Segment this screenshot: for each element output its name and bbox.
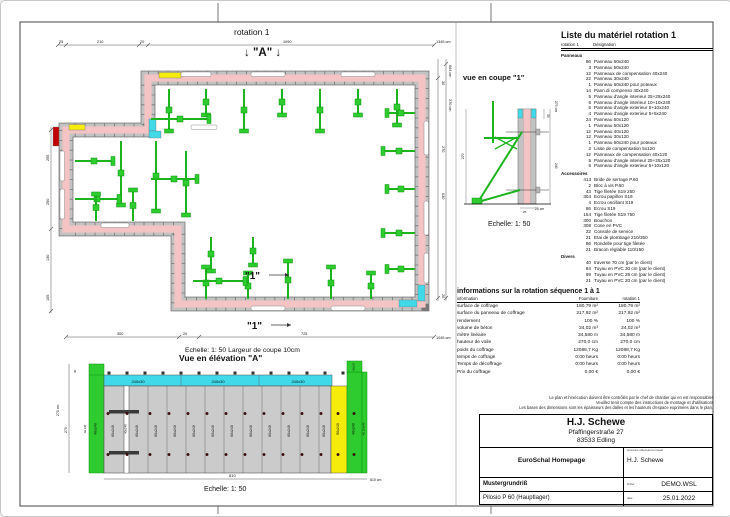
file-value: DEMO.WSL (649, 481, 709, 489)
green-prop-plate (316, 129, 325, 133)
green-prop-plate (367, 271, 376, 275)
svg-text:30: 30 (73, 369, 77, 373)
info-label: temps de coffrage (457, 354, 556, 361)
elevation-scale: Echelle: 1: 50 (204, 486, 247, 493)
section-wall (506, 109, 549, 204)
info-fourniture: 12088,7 Kg (556, 347, 598, 354)
green-prop-plate (202, 265, 211, 269)
info-table-header: information Fourniture rotation 1 (457, 296, 640, 303)
green-prop-coupler (328, 280, 334, 286)
section-title: vue en coupe "1" (463, 73, 525, 82)
panel-label: 60x240 (322, 425, 326, 437)
green-prop-plate (240, 129, 249, 133)
lisse-clamp (198, 372, 201, 375)
lisse-clamp (162, 372, 165, 375)
tie-dot (263, 412, 266, 415)
material-list-header: rotation 1 Désignation (561, 42, 713, 49)
lisse-clamp (288, 372, 291, 375)
lisse-clamp (252, 372, 255, 375)
panel-label: 60x240 (192, 425, 196, 437)
tie-dot (149, 453, 152, 456)
col-fourniture: Fourniture (556, 296, 598, 302)
info-table-title: informations sur la rotation séquence 1 … (457, 287, 640, 296)
material-name: Tuyau en PVC 20 cm (par le client) (594, 278, 713, 284)
green-prop-coupler (203, 99, 209, 105)
info-row: hauteur de voile270,0 cm270,0 cm (457, 339, 640, 346)
material-count: 21 (561, 278, 594, 284)
tie-dot (187, 453, 190, 456)
info-fourniture: 0:00 heurs (556, 354, 598, 361)
info-fourniture: 0,00 € (556, 369, 598, 376)
tie-dot (337, 412, 340, 415)
green-prop-coupler (93, 205, 99, 211)
svg-text:270 cm: 270 cm (554, 101, 558, 112)
elevation-title: Vue en élévation "A" (179, 353, 262, 363)
panel-label: 60x240 (211, 425, 215, 437)
green-prop-plate (381, 147, 385, 156)
material-list-col2: Désignation (593, 42, 616, 48)
waler-plate (60, 189, 65, 219)
green-prop-coupler (183, 180, 189, 186)
panel-label: 50x240 (336, 423, 340, 435)
date-field: date 25.01.2022 (624, 492, 712, 506)
tie-dot (126, 453, 129, 456)
panel-label: 60x240 (249, 425, 253, 437)
svg-text:270: 270 (441, 146, 445, 152)
material-row: 5Panneau d'angle exterieur 5+10x120 (561, 163, 713, 169)
lisse-clamp (270, 372, 273, 375)
date-value: 25.01.2022 (649, 495, 709, 503)
info-fourniture: 270,0 cm (556, 339, 598, 346)
plan-title: rotation 1 (234, 27, 270, 37)
green-prop-coupler (396, 230, 402, 236)
material-row: 21Tuyau en PVC 20 cm (par le client) (561, 278, 713, 284)
svg-text:130: 130 (46, 255, 50, 261)
section-brace-foot (472, 198, 482, 204)
tie-dot (320, 453, 323, 456)
panel-label: 60x240 (154, 425, 158, 437)
green-prop-coupler (285, 277, 291, 283)
info-rotation1: 0,00 € (598, 369, 640, 376)
lisse-clamp (234, 372, 237, 375)
waler-plate (251, 306, 285, 311)
green-prop-coupler (216, 278, 222, 284)
green-prop-plate (207, 269, 216, 273)
svg-text:725: 725 (301, 332, 307, 336)
green-prop-plate (195, 175, 199, 184)
panel-label: 40x120 (353, 362, 356, 371)
info-label: surface de coffrage (457, 303, 556, 310)
tie-dot (187, 412, 190, 415)
panel-label: 40x240 (352, 423, 356, 435)
panel-label: 40x240 (94, 423, 98, 435)
svg-text:270 cm: 270 cm (56, 404, 60, 416)
info-row: volume de béton24,02 m³24,02 m³ (457, 325, 640, 332)
green-prop-plate (393, 123, 402, 127)
info-row: mètre linéaire34,580 m34,580 m (457, 332, 640, 339)
panel-label: 60x240 (135, 425, 139, 437)
green-prop-coupler (241, 107, 247, 113)
svg-text:25: 25 (59, 40, 63, 44)
svg-text:240: 240 (554, 163, 558, 169)
panel-label: 60x240 (268, 425, 272, 437)
tie-dot (107, 412, 110, 415)
svg-text:300: 300 (117, 332, 123, 336)
green-prop-coupler (171, 176, 177, 182)
tie-dot (244, 453, 247, 456)
safety-notes: Le plan et l'exécution doivent être cont… (431, 395, 713, 410)
green-prop-plate (117, 195, 121, 204)
elevation-view: Vue en élévation "A" 60x24060x24060x2406… (56, 353, 382, 493)
plan-name-field: Mustergrundriß (480, 478, 624, 492)
lisse-label: 240x30 (291, 379, 305, 384)
svg-text:810: 810 (229, 473, 236, 478)
green-prop-coupler (279, 99, 285, 105)
tie-dot (301, 412, 304, 415)
green-prop-coupler (398, 186, 404, 192)
panel-label: 60x240 (173, 425, 177, 437)
green-prop-plate (385, 109, 389, 118)
waler-plate (191, 125, 217, 130)
waler-plate (101, 223, 129, 228)
tie-dot (320, 412, 323, 415)
green-prop-coupler (398, 110, 404, 116)
green-prop-coupler (394, 104, 400, 110)
material-row: 21Bracon réglable 110/150 (561, 247, 713, 253)
rotation-info-table: informations sur la rotation séquence 1 … (457, 287, 640, 376)
tie-dot (149, 412, 152, 415)
green-prop-plate (129, 188, 138, 192)
green-prop-plate (249, 263, 258, 267)
svg-text:105: 105 (46, 295, 50, 301)
info-fourniture: 34,580 m (556, 332, 598, 339)
lisse-clamp (108, 372, 111, 375)
info-row: surface de coffrage180,79 m²180,79 m² (457, 303, 640, 310)
info-rotation1: 100 % (598, 318, 640, 325)
lisse-clamp (306, 372, 309, 375)
green-prop-coupler (166, 107, 172, 113)
green-prop-coupler (250, 248, 256, 254)
tie-dot (107, 453, 110, 456)
lisse-label: 240x30 (211, 379, 225, 384)
tie-dot (282, 412, 285, 415)
svg-text:20: 20 (183, 332, 187, 336)
tie-dot (206, 453, 209, 456)
lisse-clamp (180, 372, 183, 375)
material-list: Liste du matériel rotation 1 rotation 1 … (561, 30, 713, 283)
tie-dot (353, 412, 356, 415)
green-prop-coupler (317, 107, 323, 113)
panel-label: AE 10x240 (362, 422, 366, 435)
info-rotation1: 12088,7 Kg (598, 347, 640, 354)
panel-label: 60x240 (287, 425, 291, 437)
tie-dot (301, 453, 304, 456)
tie-dot (168, 453, 171, 456)
green-prop-plate (385, 265, 389, 274)
formwork-field: Pilosio P 60 (Hauptlager) (480, 492, 624, 506)
green-prop-plate (152, 209, 161, 213)
panel-label: 40x240 (124, 424, 128, 434)
waler-plate (251, 72, 285, 77)
tie-dot (225, 453, 228, 456)
info-rotation1: 270,0 cm (598, 339, 640, 346)
green-prop-plate (92, 192, 101, 196)
info-rotation1: 0:00 heurs (598, 361, 640, 368)
panel-label: 60x240 (111, 425, 115, 437)
info-row: surface du panneau de coffrage217,92 m²2… (457, 310, 640, 317)
info-label: rendement (457, 318, 556, 325)
svg-text:"1": "1" (247, 321, 262, 332)
green-prop-coupler (130, 203, 136, 209)
green-prop-plate (207, 115, 211, 124)
info-rotation1: 34,580 m (598, 332, 640, 339)
green-prop-coupler (398, 266, 404, 272)
file-label: fichier (627, 483, 649, 486)
waler-plate (181, 72, 211, 77)
svg-text:270: 270 (461, 153, 465, 159)
material-count: 21 (561, 247, 594, 253)
col-information: information (457, 296, 556, 302)
svg-text:25 cm: 25 cm (535, 207, 544, 211)
site-field: EuroSchal Homepage (480, 448, 624, 478)
material-name: Panneau d'angle exterieur 5+10x120 (594, 163, 713, 169)
material-list-title: Liste du matériel rotation 1 (561, 30, 713, 41)
green-prop-plate (111, 157, 115, 166)
waler-plate (331, 306, 365, 311)
green-prop-coupler (118, 170, 124, 176)
info-label: surface du panneau de coffrage (457, 310, 556, 317)
waler-plate (341, 72, 375, 77)
section-dim-labels: 270 30 270 cm 240 25 25 cm (461, 101, 558, 214)
lisse-clamp (216, 372, 219, 375)
svg-text:1345 cm: 1345 cm (436, 40, 451, 44)
file-field: fichier DEMO.WSL (624, 478, 712, 492)
green-prop-coupler (177, 116, 183, 122)
section-scale: Echelle: 1: 50 (488, 221, 531, 228)
green-prop-plate (278, 113, 287, 117)
elevation-marker-a: ↓ "A" ↓ (244, 47, 281, 59)
tie-dot (282, 453, 285, 456)
date-label: date (627, 497, 649, 500)
info-label: volume de béton (457, 325, 556, 332)
info-rotation1: 217,92 m² (598, 310, 640, 317)
info-label: Temps de décoffrage (457, 361, 556, 368)
green-prop-coupler (91, 158, 97, 164)
divider (561, 49, 713, 52)
waler-plate (424, 253, 429, 283)
info-row: rendement100 %100 % (457, 318, 640, 325)
lisse-clamp (126, 372, 129, 375)
tie-dot (244, 412, 247, 415)
material-count: 5 (561, 163, 594, 169)
lisse-clamp (144, 372, 147, 375)
tie-dot (353, 453, 356, 456)
svg-text:20: 20 (140, 40, 144, 44)
info-label: poids du coffrage (457, 347, 556, 354)
elevation-panels (89, 361, 367, 473)
company-city: 83533 Edling (480, 437, 712, 445)
svg-text:664 cm: 664 cm (448, 65, 452, 77)
green-prop-coupler (355, 99, 361, 105)
green-prop-coupler (368, 283, 374, 289)
info-row: poids du coffrage12088,7 Kg12088,7 Kg (457, 347, 640, 354)
svg-text:30: 30 (441, 81, 445, 85)
tie-dot (206, 412, 209, 415)
svg-text:210: 210 (97, 40, 103, 44)
info-label: mètre linéaire (457, 332, 556, 339)
company-street: Pfaffingerstraße 27 (480, 429, 712, 437)
material-list-col1: rotation 1 (561, 42, 593, 48)
svg-text:1045 cm: 1045 cm (436, 336, 451, 340)
panel-label: 60x240 (306, 425, 310, 437)
svg-text:"1": "1" (245, 271, 260, 282)
tie-dot (168, 412, 171, 415)
svg-text:810 cm: 810 cm (370, 478, 382, 482)
section-view: vue en coupe "1" 270 30 270 (461, 73, 558, 228)
info-label: hauteur de voile (457, 339, 556, 346)
svg-text:250: 250 (46, 199, 50, 205)
green-prop-plate (354, 113, 363, 117)
worker-field: personne effectuant le travail H.J. Sche… (624, 448, 712, 478)
info-fourniture: 100 % (556, 318, 598, 325)
info-row: Prix du coffrage0,00 €0,00 € (457, 369, 640, 376)
section-brace (478, 101, 522, 202)
note-line: Les bases des dimensions sont les épaiss… (431, 405, 713, 410)
info-fourniture: 217,92 m² (556, 310, 598, 317)
green-prop-coupler (208, 251, 214, 257)
company-header: H.J. Schewe Pfaffingerstraße 27 83533 Ed… (480, 415, 712, 448)
green-prop-plate (381, 229, 385, 238)
waler-plate (424, 121, 429, 155)
plan-view: rotation 1 ↓ "A" ↓ (46, 27, 452, 354)
tie-dot (225, 412, 228, 415)
info-row: Temps de décoffrage0:00 heurs0:00 heurs (457, 361, 640, 368)
panel-label: AE 240 (83, 424, 87, 433)
svg-text:270: 270 (64, 427, 68, 433)
drawing-sheet: rotation 1 ↓ "A" ↓ (0, 0, 730, 517)
tie-dot (126, 412, 129, 415)
green-prop-plate (385, 185, 389, 194)
svg-text:20: 20 (441, 294, 445, 298)
waler-plate (60, 151, 65, 181)
info-fourniture: 0:00 heurs (556, 361, 598, 368)
svg-text:255: 255 (46, 155, 50, 161)
info-rotation1: 180,79 m² (598, 303, 640, 310)
green-prop-plate (182, 213, 191, 217)
svg-text:30: 30 (546, 114, 550, 118)
company-name: H.J. Schewe (480, 417, 712, 429)
green-prop-coupler (396, 148, 402, 154)
info-label: Prix du coffrage (457, 369, 556, 376)
material-list-rows: Panneaux86Panneau 60x2403Panneau 50x2401… (561, 53, 713, 283)
worker-value: H.J. Schewe (627, 452, 709, 465)
material-name: Bracon réglable 110/150 (594, 247, 713, 253)
svg-text:270 cm: 270 cm (448, 99, 452, 111)
svg-text:630: 630 (441, 193, 445, 199)
lisse-clamp (324, 372, 327, 375)
plan-green-props (75, 89, 415, 299)
title-block: H.J. Schewe Pfaffingerstraße 27 83533 Ed… (479, 414, 713, 505)
info-rotation1: 0:00 heurs (598, 354, 640, 361)
info-rotation1: 24,02 m³ (598, 325, 640, 332)
info-table-rows: surface de coffrage180,79 m²180,79 m²sur… (457, 303, 640, 376)
info-fourniture: 180,79 m² (556, 303, 598, 310)
lisse-clamp (342, 372, 345, 375)
info-fourniture: 24,02 m³ (556, 325, 598, 332)
col-rotation1: rotation 1 (598, 296, 640, 302)
svg-text:25: 25 (523, 210, 527, 214)
svg-text:1090: 1090 (283, 40, 291, 44)
lisse-label: 240x30 (131, 379, 145, 384)
green-prop-plate (284, 259, 293, 263)
panel-label: 60x240 (230, 425, 234, 437)
green-prop-plate (327, 265, 336, 269)
info-row: temps de coffrage0:00 heurs0:00 heurs (457, 354, 640, 361)
waler-plate (424, 201, 429, 235)
green-prop-plate (165, 129, 174, 133)
tie-dot (263, 453, 266, 456)
tie-dot (337, 453, 340, 456)
